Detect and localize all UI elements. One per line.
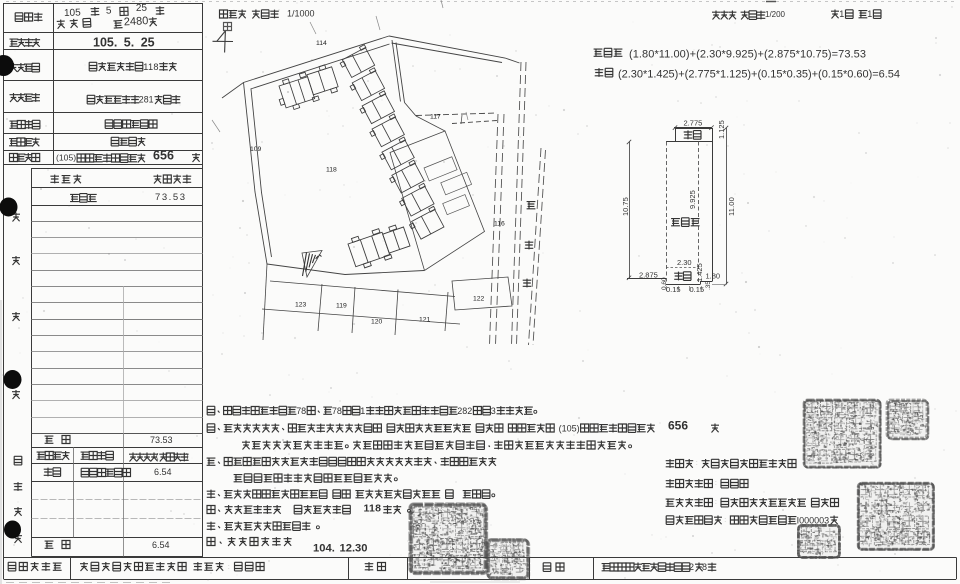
svg-text:119: 119	[336, 303, 347, 310]
svg-text:12.30: 12.30	[340, 542, 368, 554]
svg-text:2480: 2480	[124, 15, 149, 28]
svg-text:0.15: 0.15	[690, 285, 705, 294]
svg-text:(105): (105)	[56, 153, 76, 163]
svg-text:2.30: 2.30	[677, 258, 692, 267]
svg-text:118: 118	[364, 503, 382, 515]
svg-text:6.54: 6.54	[154, 467, 172, 477]
svg-text:120: 120	[371, 319, 383, 326]
svg-text:(105): (105)	[559, 423, 580, 433]
svg-text:656: 656	[153, 148, 174, 162]
svg-text:): )	[186, 453, 188, 460]
svg-text:2.775: 2.775	[684, 119, 703, 128]
svg-text:1: 1	[839, 9, 844, 19]
svg-text:25: 25	[136, 3, 148, 14]
svg-text:.35: .35	[705, 281, 712, 290]
svg-text:73.53: 73.53	[155, 192, 185, 203]
svg-text:2: 2	[689, 562, 694, 572]
svg-text:(2.30*1.425)+(2.775*1.125)+(0.: (2.30*1.425)+(2.775*1.125)+(0.15*0.35)+(…	[618, 68, 900, 80]
svg-text:73.53: 73.53	[150, 435, 173, 445]
svg-text:1: 1	[360, 406, 365, 416]
svg-text:114: 114	[316, 40, 327, 47]
svg-text:78: 78	[296, 406, 306, 416]
svg-text:123: 123	[295, 302, 307, 309]
svg-text:2.875: 2.875	[639, 270, 658, 279]
svg-text:3: 3	[491, 406, 496, 416]
svg-text:11.00: 11.00	[727, 197, 736, 216]
svg-text:116: 116	[494, 221, 505, 228]
svg-text:8: 8	[702, 562, 707, 572]
svg-text:281: 281	[139, 94, 154, 104]
svg-text:105.: 105.	[93, 36, 117, 50]
svg-text:1.425: 1.425	[695, 263, 704, 282]
svg-text:78: 78	[332, 406, 342, 416]
svg-text:656: 656	[668, 419, 688, 433]
svg-text:9.925: 9.925	[688, 190, 697, 209]
svg-text:105: 105	[64, 7, 82, 19]
svg-text:109: 109	[250, 146, 262, 153]
svg-text:121: 121	[419, 317, 431, 324]
svg-text:118: 118	[326, 167, 337, 174]
svg-text:117: 117	[430, 114, 441, 121]
svg-text:(1.80*11.00)+(2.30*9.925)+(2.8: (1.80*11.00)+(2.30*9.925)+(2.875*10.75)=…	[629, 48, 866, 60]
svg-text:10.75: 10.75	[621, 197, 630, 216]
svg-text:25: 25	[141, 36, 155, 50]
svg-text:(: (	[156, 453, 159, 460]
svg-text:122: 122	[473, 296, 485, 303]
svg-text:5.: 5.	[124, 36, 134, 50]
svg-text:1: 1	[867, 9, 872, 19]
svg-text:118: 118	[143, 62, 158, 72]
svg-text:1.80: 1.80	[706, 272, 721, 281]
svg-text:1/1000: 1/1000	[287, 9, 315, 19]
svg-text:1.125: 1.125	[717, 120, 726, 139]
svg-text:104.: 104.	[313, 542, 335, 554]
svg-text:6.54: 6.54	[152, 540, 170, 550]
svg-text:1/200: 1/200	[765, 10, 786, 19]
svg-text:0.15: 0.15	[666, 285, 681, 294]
svg-text:282: 282	[457, 406, 472, 416]
svg-text:5: 5	[106, 5, 112, 16]
